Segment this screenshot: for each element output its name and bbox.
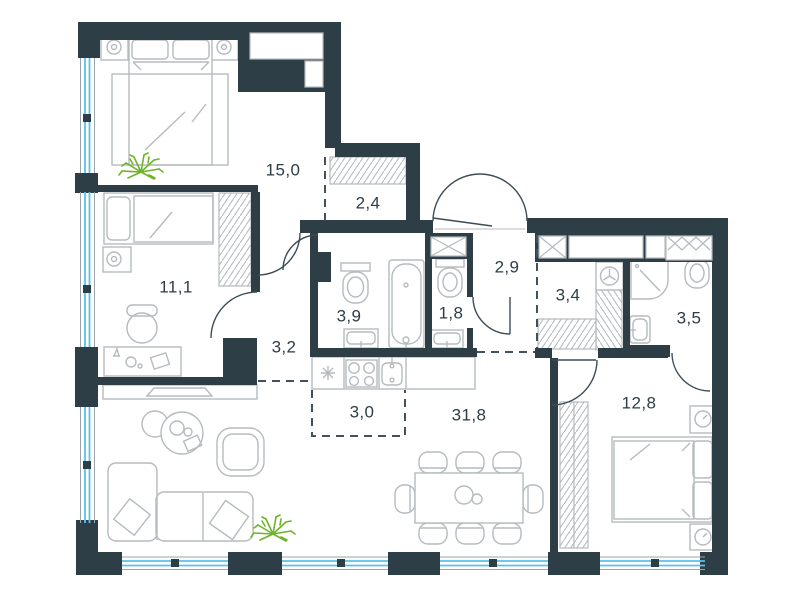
bathtub-icon — [389, 260, 424, 348]
room-label-bedroom-third: 12,8 — [622, 395, 657, 412]
electric-point-icon — [321, 366, 335, 380]
wardrobe-hatch-bedroom-third — [560, 402, 588, 548]
closet-shelf-icon — [646, 236, 665, 258]
coffee-table-icon — [142, 411, 203, 454]
dining-table-icon — [415, 473, 523, 523]
wardrobe-hatch-bedroom-second — [219, 193, 251, 286]
wardrobe-hatch-bedroom-main — [330, 157, 406, 184]
room-label-bathroom-main: 3,9 — [337, 308, 362, 325]
room-label-entrance-hall: 2,9 — [495, 259, 520, 276]
entrance-door-icon — [433, 174, 527, 229]
armchair-icon — [217, 428, 264, 476]
closet-shelf-icon — [569, 236, 643, 258]
room-label-bathroom-second: 3,5 — [677, 310, 702, 327]
storage-niche-icon — [666, 236, 712, 260]
room-label-living-dining-room: 31,8 — [452, 407, 487, 424]
sink-icon — [630, 316, 650, 343]
sink-icon — [344, 329, 378, 348]
toilet-icon — [341, 263, 370, 303]
door-arc-icon — [672, 353, 710, 391]
room-label-walkthrough-wardrobe: 3,4 — [556, 287, 581, 304]
plant-icon — [251, 515, 295, 541]
nightstand-icon — [103, 247, 131, 272]
floor-plan-svg — [0, 0, 800, 600]
door-arc-icon — [211, 292, 257, 338]
room-label-wardrobe-bedroom-main: 2,4 — [356, 195, 381, 212]
wardrobe-hatch-34-b — [596, 288, 622, 350]
washing-machine-icon — [596, 262, 623, 290]
single-bed-icon — [104, 193, 213, 244]
wardrobe-hatch-34-a — [538, 319, 596, 349]
sink-icon — [431, 330, 463, 348]
floor-plan-page: 15,0 2,4 11,1 3,2 3,9 1,8 2,9 3,4 3,5 3,… — [0, 0, 800, 600]
room-label-bedroom-second: 11,1 — [159, 279, 192, 296]
door-arc-icon — [473, 297, 510, 334]
shaft-icon — [250, 33, 323, 59]
room-label-kitchen-zone: 3,0 — [350, 404, 375, 421]
vent-shaft-icon — [431, 237, 466, 256]
shaft-icon — [305, 61, 323, 87]
tv-console-icon — [103, 385, 257, 399]
double-bed-icon — [112, 36, 228, 165]
door-arc-icon — [552, 360, 597, 405]
shower-icon — [631, 261, 668, 299]
room-label-wc: 1,8 — [439, 305, 464, 322]
double-bed-2-icon — [612, 437, 712, 522]
kitchen-counter-icon — [312, 357, 475, 389]
toilet-icon — [436, 259, 464, 297]
desk-chair-icon — [127, 305, 157, 343]
room-label-inner-hallway: 3,2 — [272, 339, 297, 356]
desk-icon — [104, 347, 181, 376]
room-label-bedroom-main: 15,0 — [266, 162, 301, 179]
vent-shaft-icon — [539, 236, 566, 258]
door-arc-icon — [258, 233, 300, 275]
